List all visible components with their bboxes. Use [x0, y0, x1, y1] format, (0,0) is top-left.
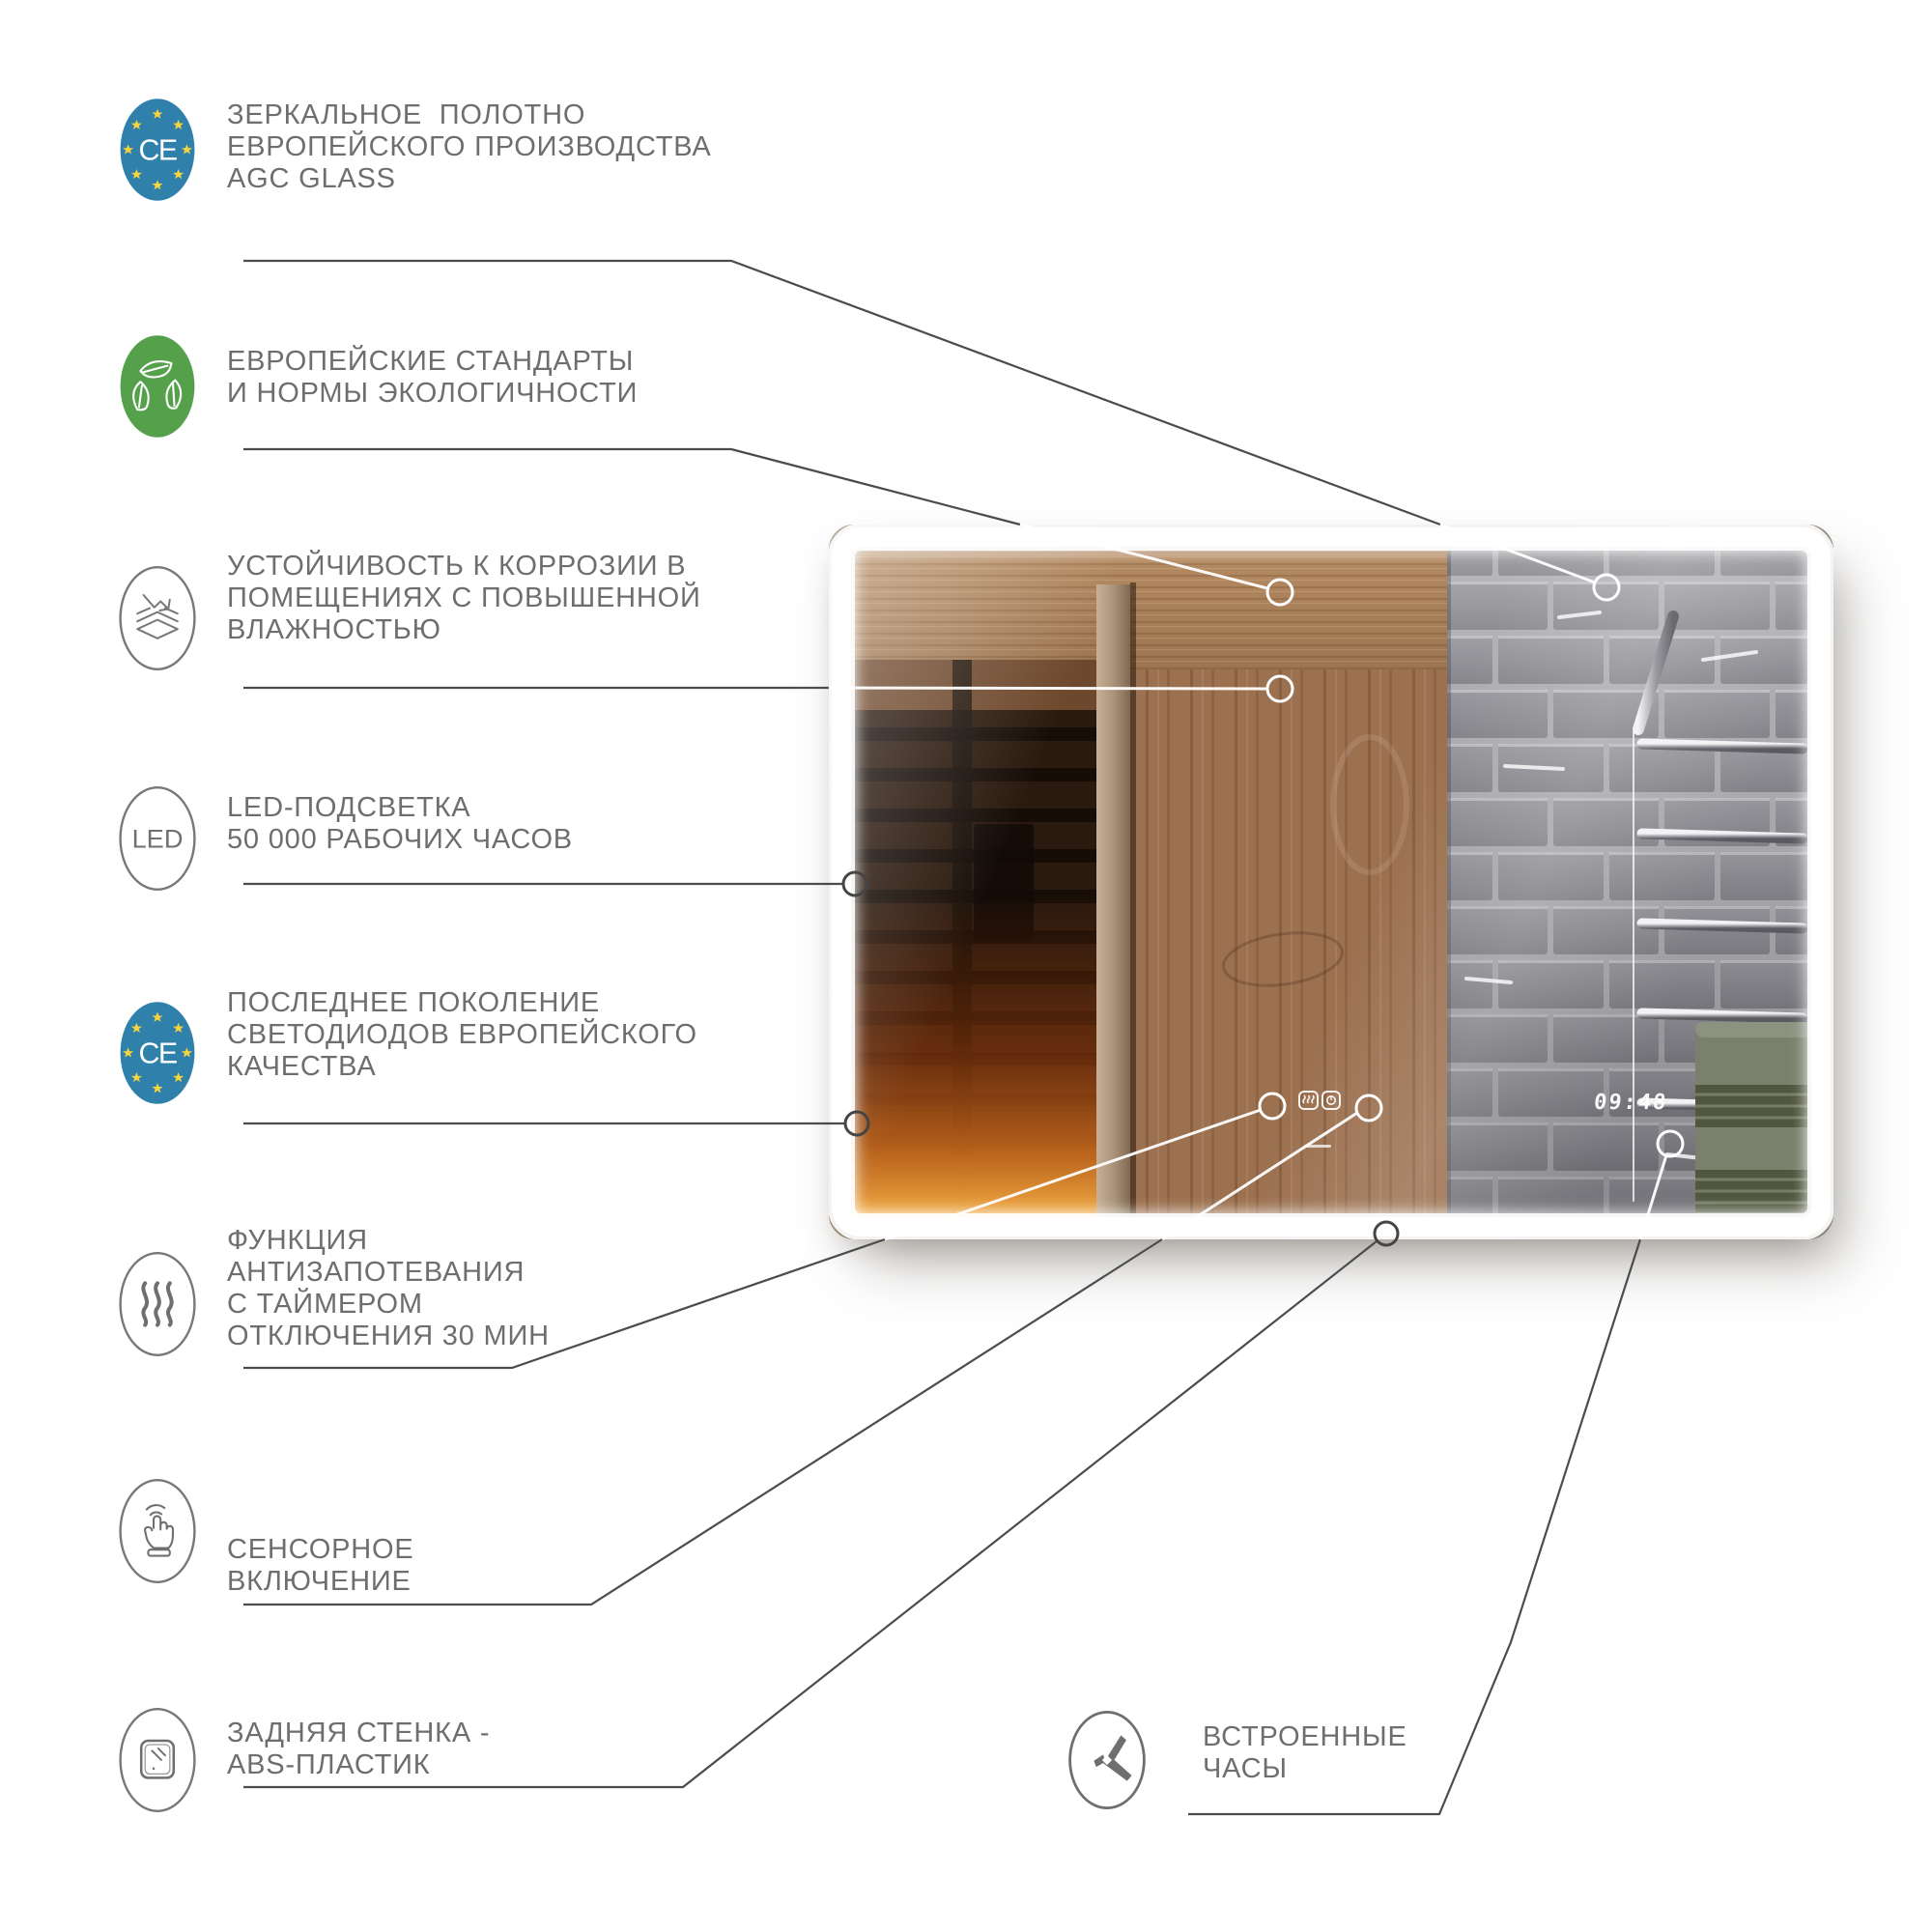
ce-letters: CE: [138, 133, 176, 166]
feature-text: ПОМЕЩЕНИЯХ С ПОВЫШЕННОЙ: [227, 582, 768, 614]
clock-icon: [1061, 1696, 1153, 1824]
feature-text: ФУНКЦИЯ: [227, 1225, 768, 1257]
feature-text: ЗЕРКАЛЬНОЕ ПОЛОТНО: [227, 99, 768, 131]
led-icon: LED: [111, 775, 204, 902]
antifog-icon: [111, 1240, 204, 1368]
ce-badge-icon: CE: [111, 989, 204, 1117]
ce-badge-icon: CE: [111, 86, 204, 213]
feature-text: КАЧЕСТВА: [227, 1051, 768, 1083]
feature-text: 50 000 РАБОЧИХ ЧАСОВ: [227, 824, 768, 856]
led-mirror-product-photo: 09:48: [829, 525, 1833, 1239]
reflection-sauna-interior: [829, 660, 1096, 1239]
feature-text: СВЕТОДИОДОВ ЕВРОПЕЙСКОГО: [227, 1019, 768, 1051]
eco-leaves-icon: [111, 323, 204, 450]
feature-text: ABS-ПЛАСТИК: [227, 1749, 768, 1781]
corrosion-resistance-icon: [111, 554, 204, 682]
feature-text: AGC GLASS: [227, 163, 768, 195]
feature-text: АНТИЗАПОТЕВАНИЯ: [227, 1257, 768, 1289]
mirror-reflection-scene: 09:48: [829, 525, 1833, 1239]
feature-text: ЕВРОПЕЙСКИЕ СТАНДАРТЫ: [227, 346, 768, 378]
reflection-door-pillar: [1096, 584, 1130, 1239]
feature-text: ЕВРОПЕЙСКОГО ПРОИЗВОДСТВА: [227, 131, 768, 163]
feature-text: ВЛАЖНОСТЬЮ: [227, 614, 768, 646]
mirror-clock-display: 09:48: [1593, 1091, 1669, 1115]
feature-text: УСТОЙЧИВОСТЬ К КОРРОЗИИ В: [227, 551, 768, 582]
feature-text: С ТАЙМЕРОМ: [227, 1289, 768, 1321]
feature-text: ЗАДНЯЯ СТЕНКА -: [227, 1718, 768, 1749]
feature-text: ЧАСЫ: [1203, 1753, 1744, 1785]
mirror-brand-mark: [1304, 1145, 1331, 1148]
feature-text: ВСТРОЕННЫЕ: [1203, 1721, 1744, 1753]
feature-text: СЕНСОРНОЕ: [227, 1534, 768, 1566]
feature-text: ОТКЛЮЧЕНИЯ 30 МИН: [227, 1321, 768, 1352]
touch-icon: [111, 1467, 204, 1595]
ce-letters: CE: [138, 1037, 176, 1069]
feature-text: ВКЛЮЧЕНИЕ: [227, 1566, 768, 1598]
feature-text: И НОРМЫ ЭКОЛОГИЧНОСТИ: [227, 378, 768, 410]
feature-text: ПОСЛЕДНЕЕ ПОКОЛЕНИЕ: [227, 987, 768, 1019]
infographic-canvas: 09:48 CE: [0, 0, 1932, 1932]
abs-back-icon: [111, 1696, 204, 1824]
feature-text: LED-ПОДСВЕТКА: [227, 792, 768, 824]
led-letters: LED: [132, 824, 184, 854]
